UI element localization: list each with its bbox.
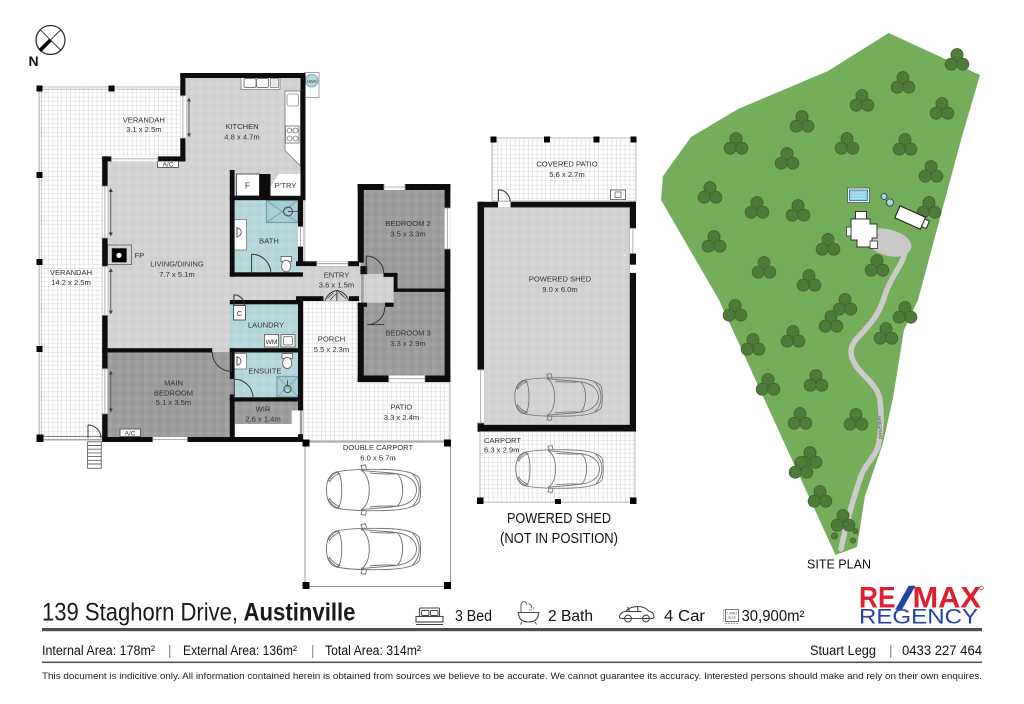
svg-text:ENTRY: ENTRY	[324, 271, 350, 280]
svg-text:BATH: BATH	[259, 237, 279, 246]
svg-text:F: F	[245, 182, 250, 191]
svg-text:139 Staghorn Drive,: 139 Staghorn Drive,	[42, 599, 238, 627]
svg-text:30,900m²: 30,900m²	[742, 608, 805, 625]
svg-text:SIZE: SIZE	[728, 616, 737, 620]
svg-text:COVERED PATIO: COVERED PATIO	[536, 160, 597, 169]
svg-text:|: |	[168, 643, 172, 658]
svg-text:BEDROOM 3: BEDROOM 3	[385, 329, 431, 338]
svg-text:5.1 x 3.5m: 5.1 x 3.5m	[156, 398, 191, 407]
svg-text:3.6 x 1.5m: 3.6 x 1.5m	[319, 281, 354, 290]
svg-text:External Area: 136m²: External Area: 136m²	[183, 643, 297, 658]
svg-text:6.3 x 2.9m: 6.3 x 2.9m	[484, 446, 519, 455]
svg-text:|: |	[311, 643, 315, 658]
svg-text:3.3 x 2.9m: 3.3 x 2.9m	[390, 339, 425, 348]
svg-text:CARPORT: CARPORT	[484, 436, 521, 445]
svg-text:WIR: WIR	[256, 405, 271, 414]
svg-text:KITCHEN: KITCHEN	[225, 122, 258, 131]
svg-text:0433 227 464: 0433 227 464	[902, 643, 982, 658]
svg-text:6.0 x 5.7m: 6.0 x 5.7m	[360, 454, 395, 463]
svg-text:HWS: HWS	[307, 79, 317, 84]
svg-text:C: C	[237, 309, 243, 318]
svg-text:REGENCY: REGENCY	[859, 605, 978, 628]
svg-text:3.1 x 2.5m: 3.1 x 2.5m	[126, 125, 161, 134]
svg-text:A/C: A/C	[163, 162, 174, 169]
svg-text:BEDROOM: BEDROOM	[154, 389, 193, 398]
svg-text:PATIO: PATIO	[391, 403, 413, 412]
svg-text:4.8 x 4.7m: 4.8 x 4.7m	[224, 133, 259, 142]
svg-text:POWERED SHED: POWERED SHED	[507, 510, 611, 527]
svg-text:5.6 x 2.7m: 5.6 x 2.7m	[549, 170, 584, 179]
svg-text:3 Bed: 3 Bed	[455, 608, 492, 625]
svg-text:FP: FP	[135, 251, 145, 260]
svg-text:7.7 x 5.1m: 7.7 x 5.1m	[159, 270, 194, 279]
svg-text:MAIN: MAIN	[164, 379, 183, 388]
svg-text:BEDROOM 2: BEDROOM 2	[385, 219, 431, 228]
svg-text:Total Area: 314m²: Total Area: 314m²	[325, 643, 421, 658]
svg-text:This document is indicitive on: This document is indicitive only. All in…	[42, 670, 982, 681]
svg-text:Austinville: Austinville	[244, 599, 356, 627]
svg-text:3.5 x 3.3m: 3.5 x 3.3m	[390, 230, 425, 239]
svg-text:DOUBLE CARPORT: DOUBLE CARPORT	[343, 443, 414, 452]
svg-text:|: |	[889, 643, 893, 658]
svg-text:4 Car: 4 Car	[664, 608, 705, 625]
svg-text:SITE PLAN: SITE PLAN	[807, 557, 871, 572]
svg-text:A/C: A/C	[125, 430, 136, 437]
svg-text:14.2 x 2.5m: 14.2 x 2.5m	[51, 278, 91, 287]
svg-text:5.5 x 2.3m: 5.5 x 2.3m	[314, 345, 349, 354]
svg-text:Internal Area: 178m²: Internal Area: 178m²	[42, 643, 155, 658]
svg-text:3.3 x 2.4m: 3.3 x 2.4m	[384, 413, 419, 422]
svg-text:PORCH: PORCH	[318, 335, 345, 344]
svg-text:VERANDAH: VERANDAH	[123, 116, 165, 125]
svg-text:ENSUITE: ENSUITE	[249, 367, 282, 376]
svg-text:WM: WM	[265, 339, 277, 346]
svg-text:P’TRY: P’TRY	[275, 181, 297, 190]
svg-text:VERANDAH: VERANDAH	[50, 268, 92, 277]
svg-text:(NOT IN POSITION): (NOT IN POSITION)	[500, 530, 618, 547]
svg-text:N: N	[28, 53, 38, 69]
svg-text:LIVING/DINING: LIVING/DINING	[150, 260, 204, 269]
svg-text:POWERED SHED: POWERED SHED	[529, 275, 592, 284]
svg-text:2.6 x 1.4m: 2.6 x 1.4m	[245, 415, 280, 424]
svg-text:9.0 x 6.0m: 9.0 x 6.0m	[542, 285, 577, 294]
svg-text:2 Bath: 2 Bath	[548, 608, 593, 625]
svg-text:LAUNDRY: LAUNDRY	[248, 321, 284, 330]
svg-text:Stuart Legg: Stuart Legg	[810, 643, 876, 658]
svg-text:LAND: LAND	[727, 612, 737, 616]
